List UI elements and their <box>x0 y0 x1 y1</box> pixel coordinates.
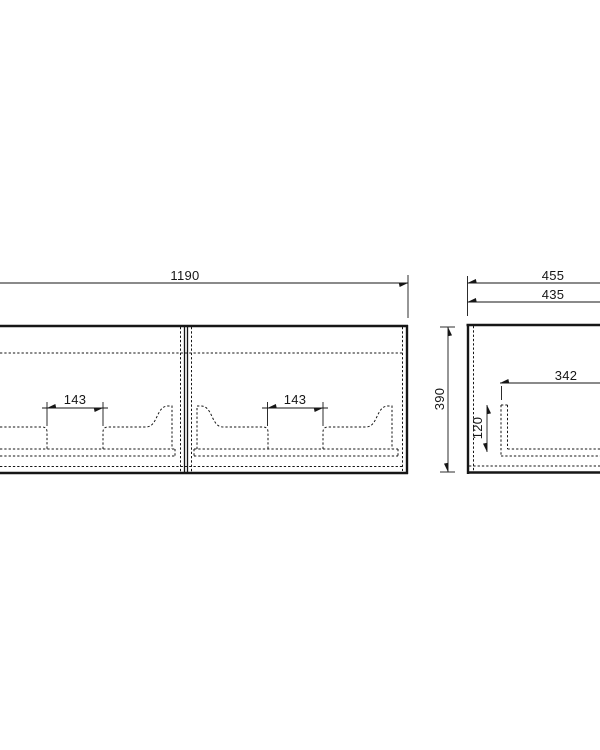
dim-label-right-cutout: 143 <box>284 392 307 407</box>
profile-left-inner <box>103 406 172 449</box>
dimension-right-cutout: 143 <box>262 392 328 426</box>
dimension-inner-height: 120 <box>470 405 491 453</box>
dim-label-depth-outer: 455 <box>542 268 565 283</box>
side-view: 455 435 342 120 <box>467 268 600 474</box>
front-right-drawer-profile <box>194 406 398 456</box>
arrowhead-left <box>467 279 477 285</box>
dimension-depth-inner: 435 <box>467 287 600 304</box>
front-view: 1190 143 143 390 <box>0 268 455 474</box>
arrowhead-down <box>483 443 489 453</box>
arrowhead-right <box>94 406 104 412</box>
dimension-depth-outer: 455 <box>467 268 600 316</box>
dim-label-left-cutout: 143 <box>64 392 87 407</box>
profile-right-inner <box>323 406 392 449</box>
dimension-inner-depth: 342 <box>500 368 600 400</box>
drawing-page: 1190 143 143 390 <box>0 0 600 750</box>
arrowhead-up <box>446 327 452 337</box>
dim-label-depth-inner: 435 <box>542 287 565 302</box>
profile-left-outer <box>0 427 47 449</box>
front-left-drawer-profile <box>0 406 175 456</box>
right-drawer-bottom-bar <box>194 449 398 456</box>
left-drawer-bottom-bar <box>0 449 175 456</box>
arrowhead-left <box>47 404 57 410</box>
side-drawer-profile <box>501 405 600 456</box>
arrowhead-left <box>467 298 477 304</box>
arrowhead-right <box>314 406 324 412</box>
arrowhead-right <box>399 281 409 287</box>
arrowhead-up <box>485 405 491 415</box>
technical-drawing-canvas: 1190 143 143 390 <box>0 0 600 750</box>
profile-right-outer <box>197 406 268 449</box>
arrowhead-left <box>500 379 510 385</box>
dim-label-inner-height: 120 <box>470 417 485 440</box>
dim-label-inner-depth: 342 <box>555 368 578 383</box>
dim-label-front-width: 1190 <box>170 268 199 283</box>
dim-label-height: 390 <box>432 388 447 411</box>
dimension-left-cutout: 143 <box>42 392 108 426</box>
arrowhead-down <box>444 463 450 473</box>
dimension-front-width: 1190 <box>0 268 408 318</box>
dimension-height: 390 <box>432 327 455 473</box>
arrowhead-left <box>267 404 277 410</box>
